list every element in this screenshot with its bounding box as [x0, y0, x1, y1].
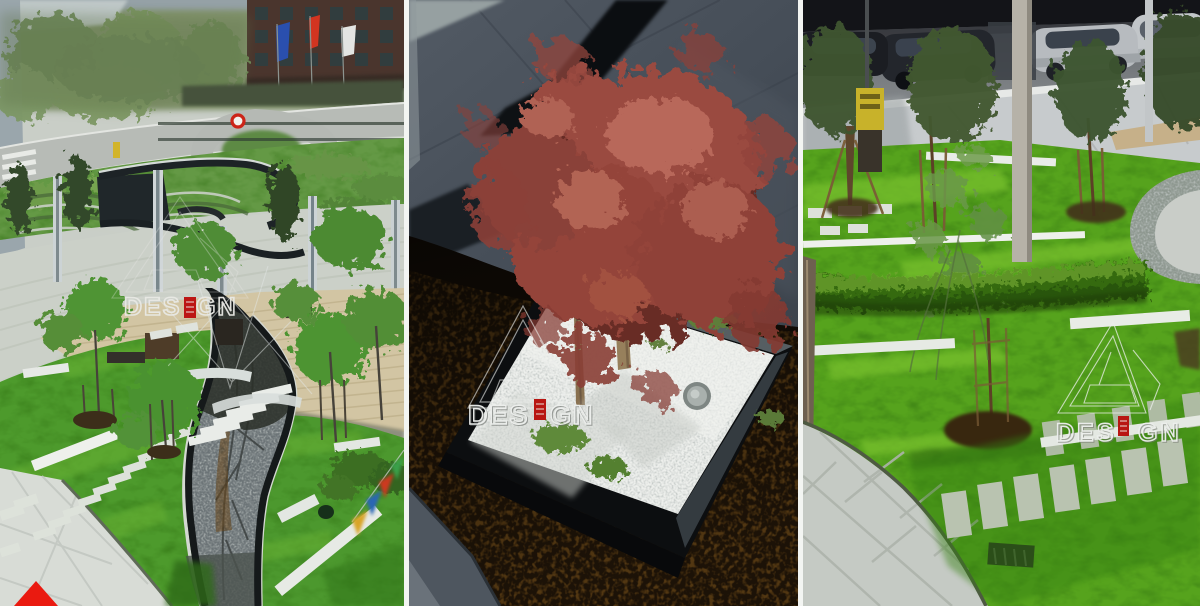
svg-text:DES: DES — [1056, 419, 1116, 447]
svg-text:DES: DES — [468, 400, 530, 430]
svg-text:DES: DES — [124, 293, 181, 321]
svg-text:GN: GN — [550, 400, 595, 430]
svg-text:GN: GN — [196, 293, 238, 321]
svg-text:GN: GN — [1138, 419, 1182, 447]
